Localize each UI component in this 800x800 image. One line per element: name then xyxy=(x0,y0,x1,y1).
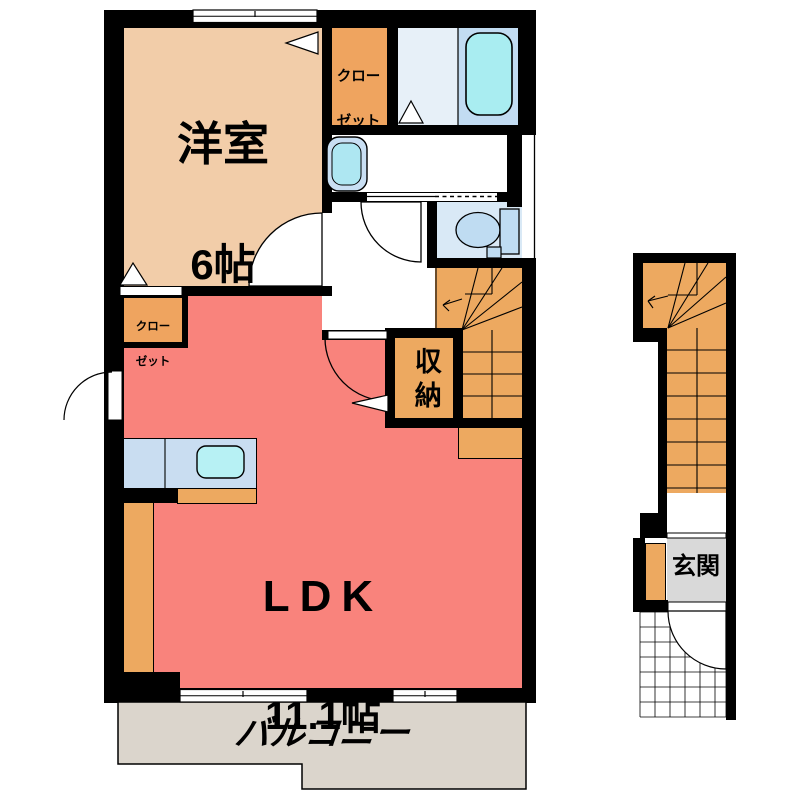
toilet-icon xyxy=(456,209,519,258)
sliding-door-icon xyxy=(367,193,497,201)
door-arc-icon xyxy=(668,611,726,669)
entrance-label: 玄関 xyxy=(665,552,727,582)
pipe-space xyxy=(522,135,535,258)
closet-door-arrow-icon xyxy=(286,32,318,54)
closet-top-label: クロー ゼット xyxy=(330,44,387,156)
window-icon xyxy=(193,10,317,23)
closet-ldk-label: クロー ゼット xyxy=(124,302,182,388)
ldk-door-arrow-icon xyxy=(352,395,388,412)
door-arc-icon xyxy=(64,372,112,420)
staircase-icon xyxy=(436,268,522,418)
room-western-name: 洋室 xyxy=(124,116,322,174)
door-arc-icon xyxy=(325,338,388,401)
bathtub-icon xyxy=(466,33,512,115)
room-western-size: 6帖 xyxy=(124,239,322,292)
balcony-label: バルコニー xyxy=(116,712,529,756)
door-arc-icon xyxy=(361,202,421,262)
floor-plan: 洋室 6帖 クロー ゼット クロー ゼット 収納 LDK 11.1帖 バルコニー… xyxy=(0,0,800,800)
room-ldk-name: LDK xyxy=(124,569,522,624)
storage-label: 収納 xyxy=(408,345,442,417)
bath-door-icon xyxy=(399,101,423,123)
staircase-icon xyxy=(648,263,726,493)
kitchen-sink-icon xyxy=(197,446,244,478)
